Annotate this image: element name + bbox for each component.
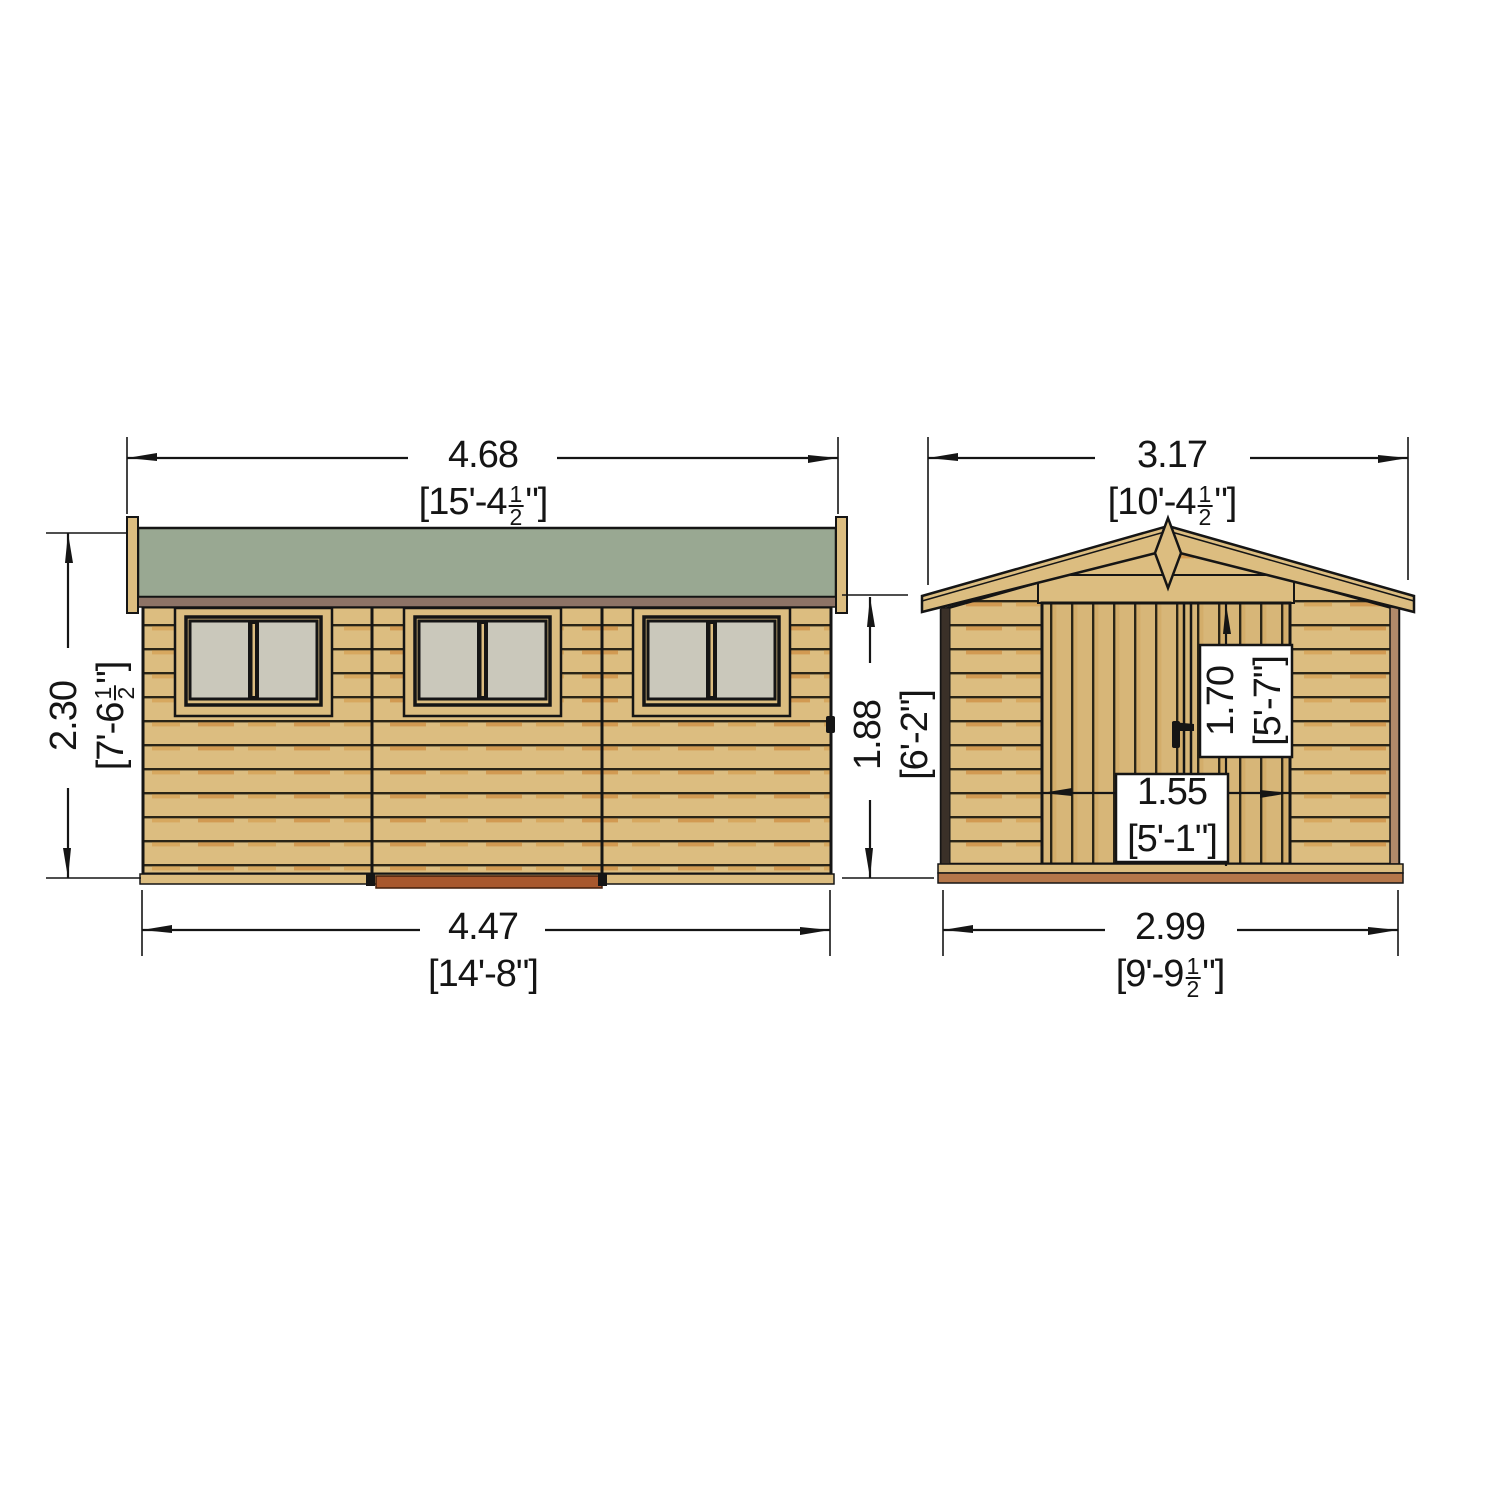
dimension-metric-value: 1.55 bbox=[1127, 770, 1217, 814]
imperial-prefix: [7'-6 bbox=[90, 703, 132, 771]
imperial-prefix: [5'-1"] bbox=[1127, 818, 1217, 860]
dimension-imperial-value: [7'-612"] bbox=[86, 662, 136, 771]
dimension-door-width: 1.55 [5'-1"] bbox=[1127, 770, 1217, 864]
imperial-prefix: [15'-4 bbox=[419, 481, 507, 523]
dimension-side-width-overall: 4.68 [15'-412"] bbox=[419, 433, 548, 527]
front-base-bearer bbox=[938, 873, 1403, 883]
dimension-front-width-base: 2.99 [9'-912"] bbox=[1116, 905, 1225, 999]
dimension-metric-value: 2.30 bbox=[42, 662, 86, 771]
imperial-prefix: [14'-8"] bbox=[428, 953, 538, 995]
side-elevation-view bbox=[127, 517, 847, 888]
side-barge-board-left bbox=[127, 517, 138, 613]
dimension-imperial-value: [14'-8"] bbox=[428, 949, 538, 999]
imperial-prefix: [9'-9 bbox=[1116, 953, 1184, 995]
dimension-eaves-height: 1.88 [6'-2"] bbox=[846, 690, 940, 780]
dimension-imperial-value: [5'-7"] bbox=[1243, 656, 1293, 746]
dimension-metric-value: 4.47 bbox=[428, 905, 538, 949]
dimension-door-height: 1.70 [5'-7"] bbox=[1199, 656, 1293, 746]
imperial-fraction: 12 bbox=[1185, 956, 1200, 1000]
side-base-foot bbox=[598, 874, 607, 886]
imperial-suffix: "] bbox=[525, 481, 547, 523]
imperial-prefix: [5'-7"] bbox=[1247, 656, 1289, 746]
front-base-trim bbox=[938, 864, 1403, 873]
imperial-suffix: "] bbox=[90, 662, 132, 684]
dimension-metric-value: 2.99 bbox=[1116, 905, 1225, 949]
dimension-metric-value: 1.70 bbox=[1199, 656, 1243, 746]
dimension-side-height: 2.30 [7'-612"] bbox=[42, 662, 136, 771]
imperial-fraction: 12 bbox=[1198, 484, 1213, 528]
imperial-prefix: [6'-2"] bbox=[894, 690, 936, 780]
dimension-imperial-value: [10'-412"] bbox=[1108, 477, 1237, 527]
imperial-fraction: 12 bbox=[93, 686, 137, 701]
front-corner-board-left bbox=[941, 608, 950, 864]
shed-dimension-diagram: 4.68 [15'-412"] 3.17 [10'-412"] 2.30 [7'… bbox=[0, 0, 1500, 1500]
imperial-suffix: "] bbox=[1202, 953, 1224, 995]
side-roof-fascia bbox=[133, 597, 840, 607]
imperial-prefix: [10'-4 bbox=[1108, 481, 1196, 523]
dimension-imperial-value: [5'-1"] bbox=[1127, 814, 1217, 864]
diagram-drawing bbox=[0, 0, 1500, 1500]
dimension-side-width-base: 4.47 [14'-8"] bbox=[428, 905, 538, 999]
side-barge-board-right bbox=[836, 517, 847, 613]
dimension-imperial-value: [9'-912"] bbox=[1116, 949, 1225, 999]
dimension-metric-value: 1.88 bbox=[846, 690, 890, 780]
dimension-metric-value: 3.17 bbox=[1108, 433, 1237, 477]
side-window-2 bbox=[404, 602, 561, 716]
side-wall-latch bbox=[826, 716, 835, 733]
side-window-3 bbox=[633, 602, 790, 716]
dimension-imperial-value: [15'-412"] bbox=[419, 477, 548, 527]
side-base-foot bbox=[366, 874, 375, 886]
imperial-suffix: "] bbox=[1214, 481, 1236, 523]
side-window-1 bbox=[175, 602, 332, 716]
front-corner-board-right bbox=[1390, 607, 1399, 864]
dimension-front-width-overall: 3.17 [10'-412"] bbox=[1108, 433, 1237, 527]
dimension-imperial-value: [6'-2"] bbox=[890, 690, 940, 780]
side-roof-green bbox=[138, 528, 836, 597]
dimension-metric-value: 4.68 bbox=[419, 433, 548, 477]
side-base-red-bearer bbox=[376, 876, 602, 888]
imperial-fraction: 12 bbox=[509, 484, 524, 528]
